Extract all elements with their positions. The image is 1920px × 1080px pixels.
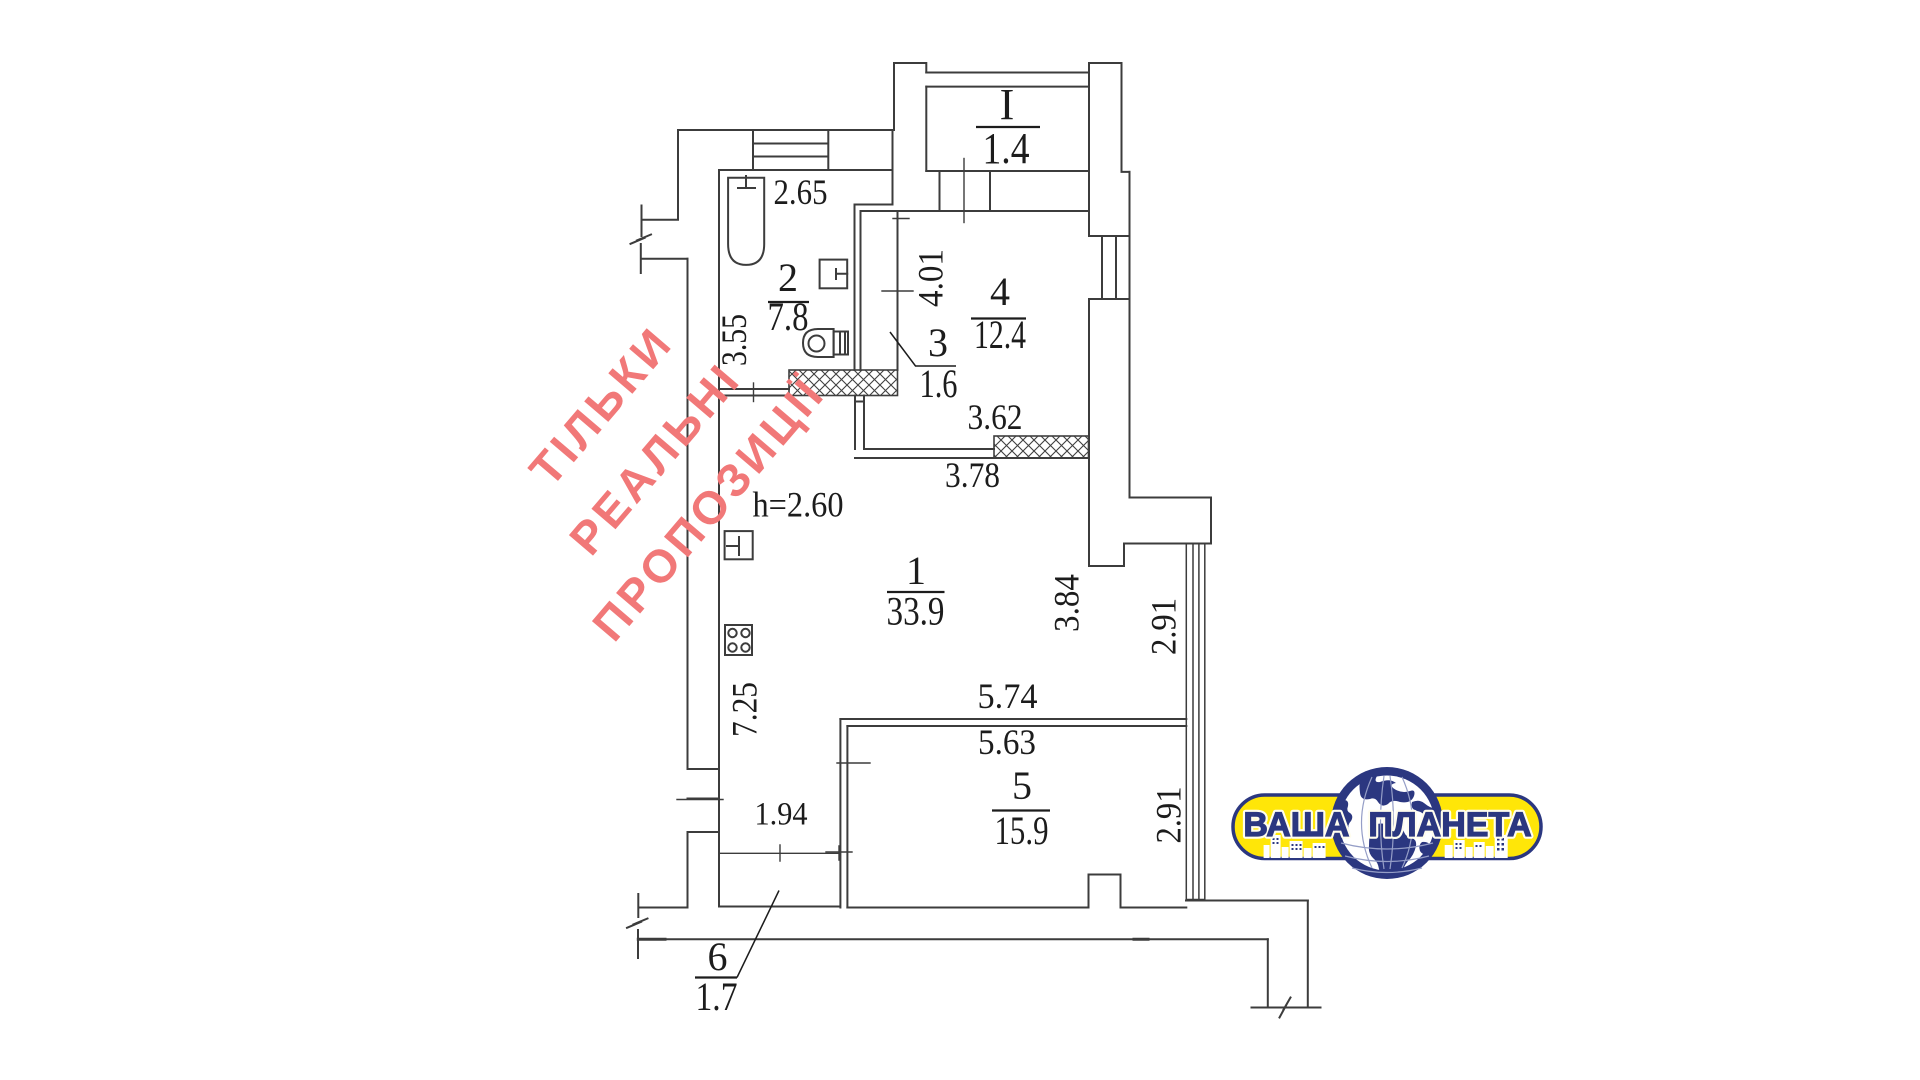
- svg-text:4.01: 4.01: [911, 249, 951, 307]
- svg-text:1.4: 1.4: [983, 124, 1030, 173]
- svg-text:3.62: 3.62: [968, 397, 1023, 437]
- svg-text:12.4: 12.4: [974, 312, 1026, 357]
- svg-text:7.8: 7.8: [768, 294, 809, 339]
- svg-text:6: 6: [708, 934, 728, 979]
- svg-text:2.65: 2.65: [774, 172, 828, 212]
- svg-text:5: 5: [1012, 763, 1032, 808]
- svg-text:5.74: 5.74: [978, 676, 1038, 716]
- svg-text:h=2.60: h=2.60: [753, 485, 844, 525]
- svg-text:3: 3: [928, 320, 948, 365]
- svg-text:I: I: [1000, 80, 1015, 129]
- svg-text:ПЛАНЕТА: ПЛАНЕТА: [1368, 806, 1531, 844]
- svg-text:15.9: 15.9: [995, 808, 1049, 853]
- svg-text:3.55: 3.55: [714, 314, 754, 366]
- svg-text:2.91: 2.91: [1149, 787, 1189, 844]
- svg-text:2.91: 2.91: [1144, 598, 1184, 655]
- svg-text:4: 4: [990, 269, 1010, 314]
- svg-text:5.63: 5.63: [978, 722, 1036, 762]
- svg-text:3.84: 3.84: [1047, 574, 1087, 632]
- svg-text:ВАША: ВАША: [1243, 806, 1349, 844]
- svg-text:7.25: 7.25: [725, 682, 765, 737]
- svg-text:3.78: 3.78: [945, 455, 1000, 495]
- svg-text:1.94: 1.94: [755, 797, 808, 833]
- svg-text:1: 1: [906, 548, 926, 593]
- svg-text:33.9: 33.9: [887, 589, 945, 634]
- svg-text:1.7: 1.7: [696, 974, 738, 1019]
- svg-text:1.6: 1.6: [920, 361, 958, 406]
